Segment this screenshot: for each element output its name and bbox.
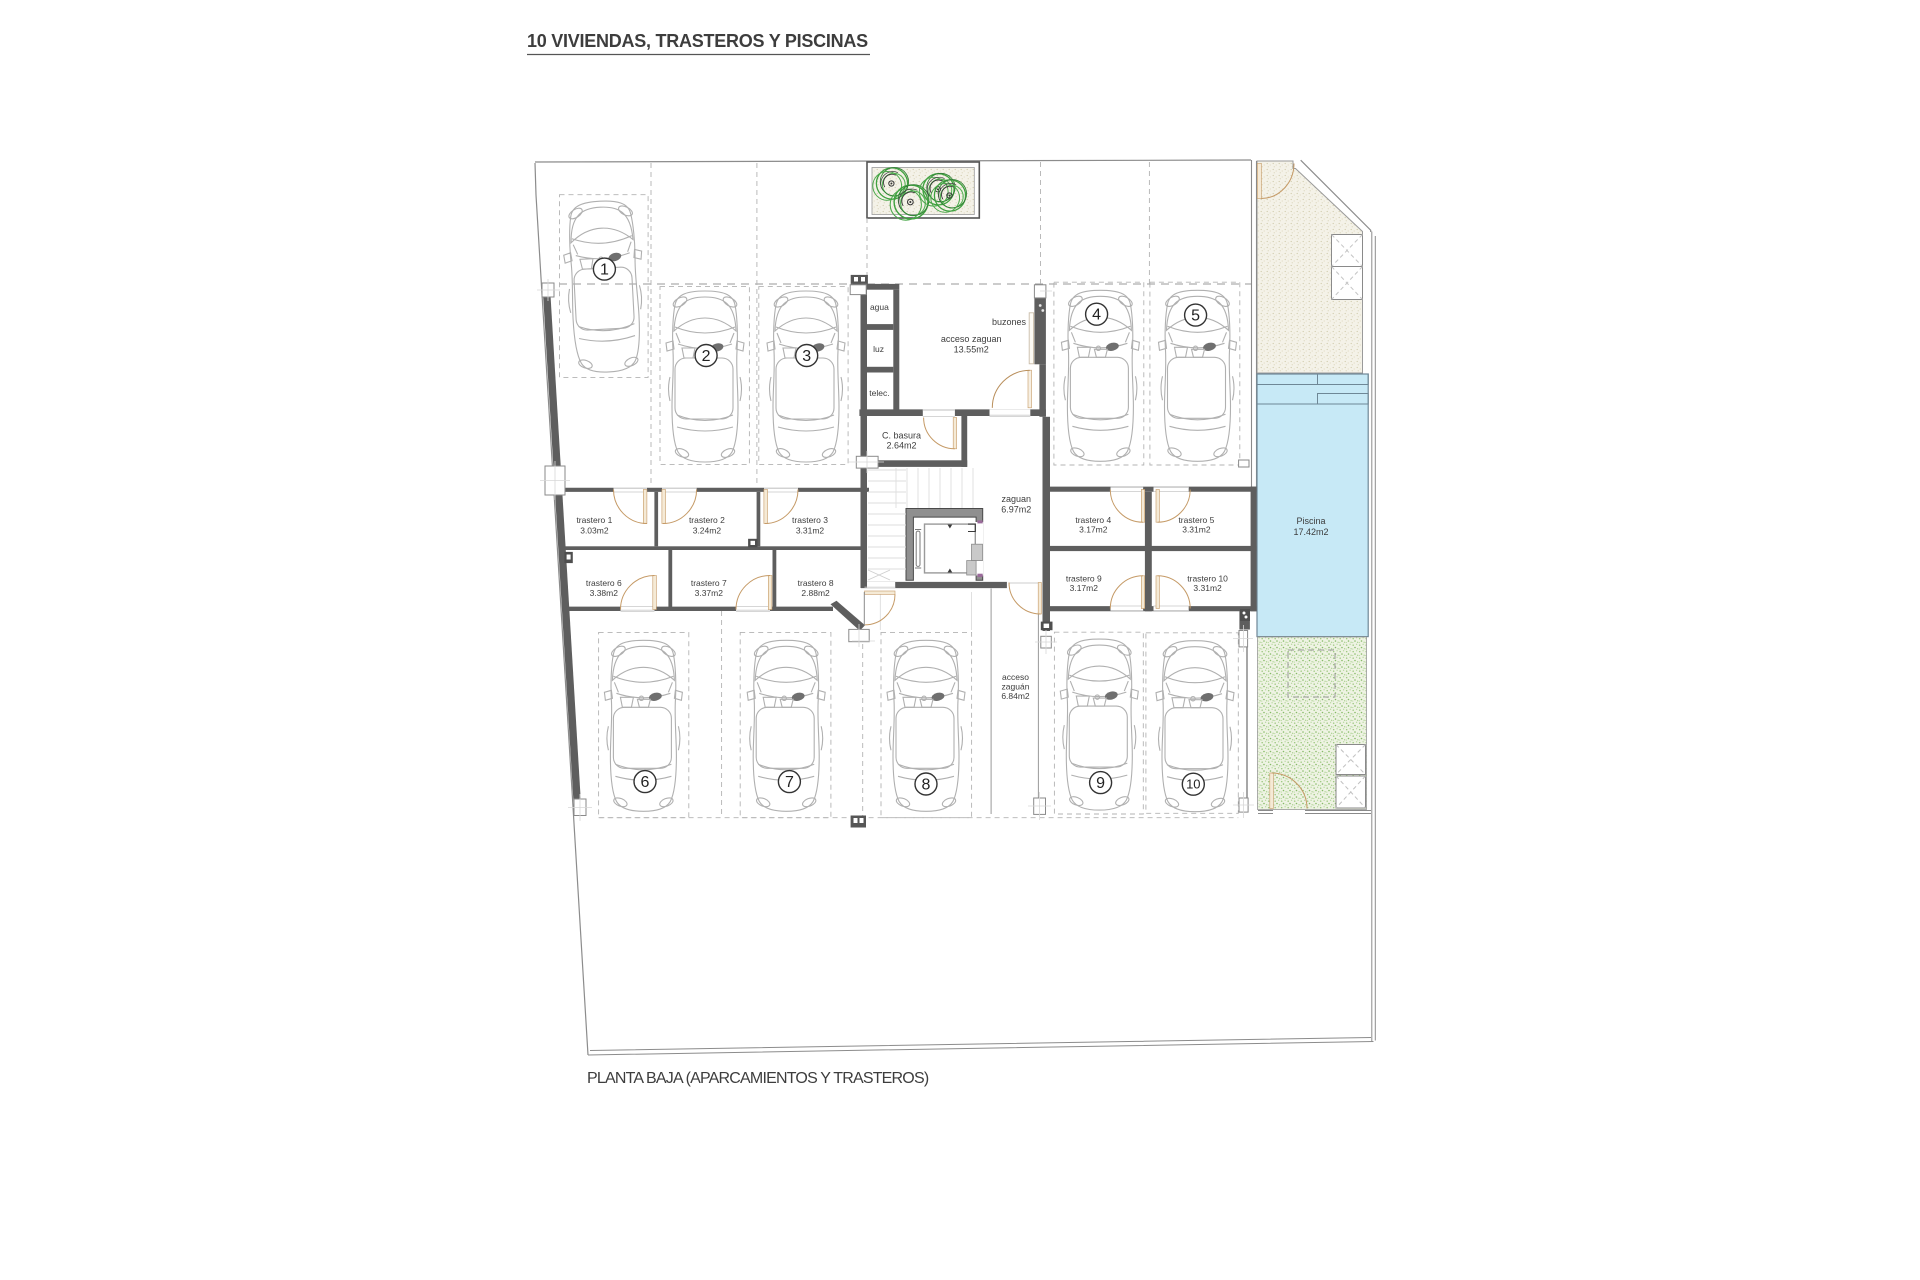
svg-text:7: 7 bbox=[785, 774, 794, 791]
svg-text:agua: agua bbox=[870, 302, 889, 312]
svg-text:zaguán: zaguán bbox=[1002, 681, 1030, 691]
svg-text:telec.: telec. bbox=[869, 388, 889, 398]
svg-text:3.37m2: 3.37m2 bbox=[695, 588, 724, 598]
svg-text:trastero 9: trastero 9 bbox=[1066, 574, 1102, 584]
svg-text:3.38m2: 3.38m2 bbox=[590, 588, 619, 598]
svg-text:trastero 3: trastero 3 bbox=[792, 515, 828, 525]
svg-text:6: 6 bbox=[641, 774, 650, 791]
svg-text:6.84m2: 6.84m2 bbox=[1001, 691, 1030, 701]
svg-text:3.03m2: 3.03m2 bbox=[580, 525, 609, 535]
svg-text:trastero 7: trastero 7 bbox=[691, 578, 727, 588]
svg-text:C. basura: C. basura bbox=[882, 431, 921, 441]
svg-text:5: 5 bbox=[1191, 308, 1200, 325]
svg-text:10 VIVIENDAS, TRASTEROS Y PISC: 10 VIVIENDAS, TRASTEROS Y PISCINAS bbox=[527, 31, 868, 51]
svg-text:9: 9 bbox=[1096, 775, 1105, 792]
svg-text:2.88m2: 2.88m2 bbox=[801, 588, 830, 598]
svg-text:6.97m2: 6.97m2 bbox=[1001, 504, 1031, 514]
svg-text:acceso zaguan: acceso zaguan bbox=[941, 334, 1002, 344]
svg-text:3.31m2: 3.31m2 bbox=[1193, 583, 1222, 593]
svg-text:10: 10 bbox=[1186, 777, 1200, 792]
svg-text:buzones: buzones bbox=[992, 317, 1027, 327]
svg-text:3.17m2: 3.17m2 bbox=[1070, 583, 1099, 593]
svg-text:zaguan: zaguan bbox=[1002, 494, 1032, 504]
svg-text:3.31m2: 3.31m2 bbox=[1182, 525, 1211, 535]
svg-text:3: 3 bbox=[802, 348, 811, 365]
svg-text:PLANTA BAJA (APARCAMIENTOS Y T: PLANTA BAJA (APARCAMIENTOS Y TRASTEROS) bbox=[587, 1070, 929, 1087]
svg-text:17.42m2: 17.42m2 bbox=[1293, 527, 1328, 537]
svg-text:1: 1 bbox=[600, 262, 609, 279]
svg-text:2.64m2: 2.64m2 bbox=[886, 440, 916, 450]
svg-text:trastero 2: trastero 2 bbox=[689, 515, 725, 525]
svg-text:3.17m2: 3.17m2 bbox=[1079, 525, 1108, 535]
svg-text:2: 2 bbox=[702, 348, 711, 365]
svg-text:trastero 6: trastero 6 bbox=[586, 578, 622, 588]
svg-text:trastero 10: trastero 10 bbox=[1187, 574, 1228, 584]
svg-text:13.55m2: 13.55m2 bbox=[954, 344, 989, 354]
svg-text:4: 4 bbox=[1092, 307, 1101, 324]
svg-text:trastero 1: trastero 1 bbox=[576, 515, 612, 525]
svg-text:luz: luz bbox=[873, 344, 884, 354]
svg-text:acceso: acceso bbox=[1002, 672, 1029, 682]
svg-text:3.24m2: 3.24m2 bbox=[693, 525, 722, 535]
svg-text:8: 8 bbox=[922, 777, 931, 794]
svg-text:Piscina: Piscina bbox=[1296, 516, 1325, 526]
svg-text:3.31m2: 3.31m2 bbox=[796, 525, 825, 535]
svg-text:trastero 8: trastero 8 bbox=[798, 578, 834, 588]
